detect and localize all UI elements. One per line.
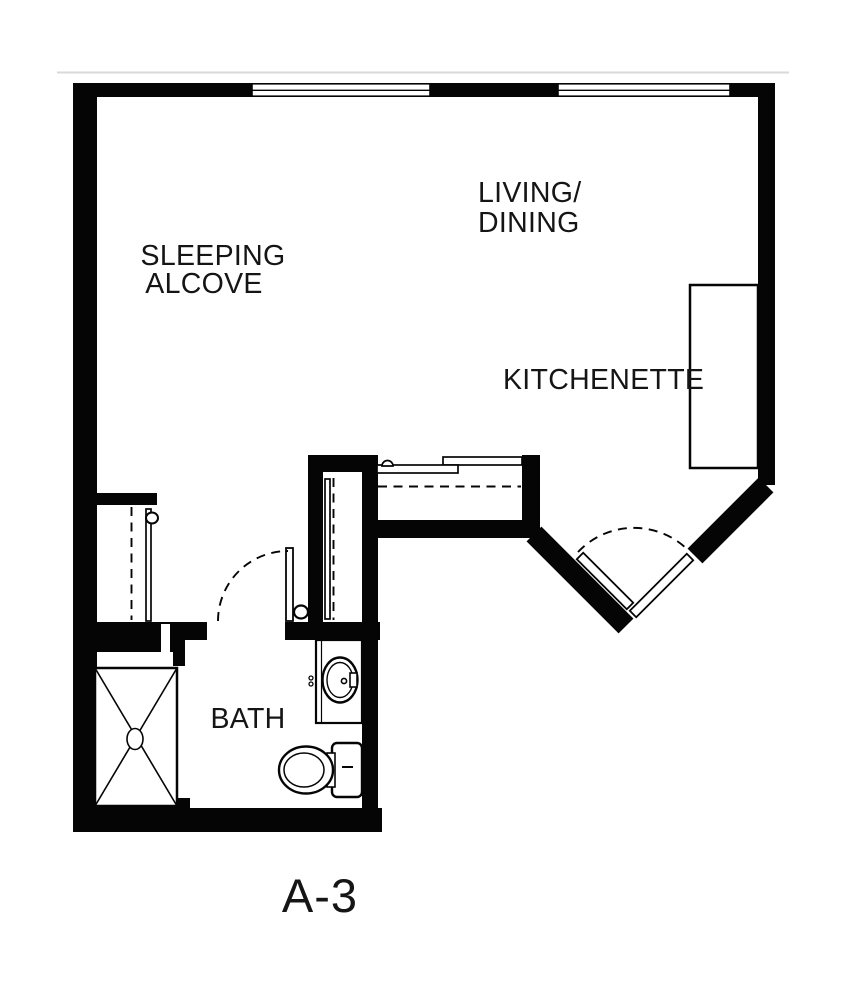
middle-closet-door-leaf [325, 479, 330, 619]
kitchenette-label: KITCHENETTE [503, 364, 704, 396]
vanity-sink [309, 640, 362, 723]
living-dining-label-line1: LIVING/ [478, 177, 581, 209]
wall-hall-right [285, 622, 380, 640]
wall-hall-left [73, 622, 207, 640]
wall-left-closet-stub [97, 493, 157, 505]
wall-bath-right [362, 455, 378, 832]
unit-label: A-3 [282, 869, 358, 922]
wall-right [758, 83, 775, 485]
left-closet-knob [146, 513, 158, 524]
wall-shower-stub [173, 652, 185, 666]
wall-mid-closet-left [308, 455, 323, 640]
window-right [558, 84, 730, 96]
shower [95, 668, 177, 806]
living-dining-label-line2: DINING [478, 207, 580, 239]
sliding-panel-handle [382, 461, 393, 467]
bath-door-knob [294, 606, 308, 619]
toilet-tank [332, 743, 362, 797]
bath-label: BATH [210, 703, 285, 735]
wall-sliding-closet-bottom [362, 520, 540, 538]
toilet [279, 743, 362, 797]
floor-plan-canvas: SLEEPING ALCOVE LIVING/ DINING KITCHENET… [0, 0, 848, 998]
left-closet-door-leaf [146, 509, 151, 621]
wall-left [73, 83, 97, 832]
floor-plan-page: SLEEPING ALCOVE LIVING/ DINING KITCHENET… [0, 0, 848, 998]
sink-faucet [350, 673, 357, 687]
sliding-panel-right [443, 457, 522, 465]
wall-notch [161, 624, 170, 652]
shower-drain [127, 729, 143, 750]
bath-door-leaf [286, 548, 293, 621]
sleeping-alcove-label-line2: ALCOVE [145, 268, 262, 300]
window-left [252, 84, 430, 96]
sink-drain [341, 678, 346, 683]
